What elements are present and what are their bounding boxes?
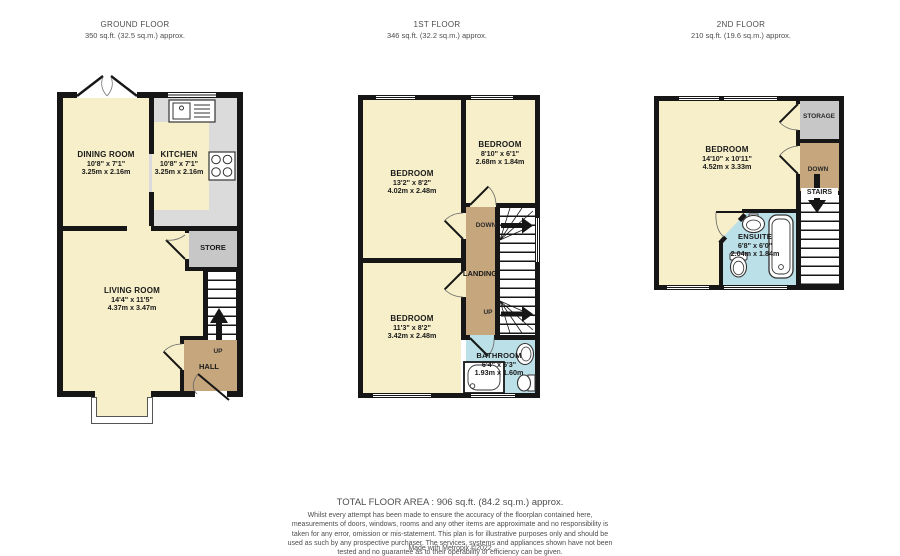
room-dim-m: 2.68m x 1.84m (476, 158, 525, 167)
wall-segment (203, 271, 207, 340)
living-room-label: LIVING ROOM 14'4" x 11'5" 4.37m x 3.47m (104, 287, 160, 313)
bay-window (96, 397, 148, 417)
first-floor-header: 1ST FLOOR 346 sq.ft. (32.2 sq.m.) approx… (387, 20, 487, 40)
wall-segment (654, 96, 659, 290)
staircase (207, 271, 237, 342)
total-floor-area: TOTAL FLOOR AREA : 906 sq.ft. (84.2 sq.m… (337, 497, 564, 508)
floor-title: 1ST FLOOR (387, 20, 487, 29)
second-floor-plan: STAIRS BEDROOM 14'10" x 10'11" 4.52m x 3… (654, 96, 844, 296)
credit-text: Made with Metropix ©2022 (408, 545, 491, 552)
ground-floor-header: GROUND FLOOR 350 sq.ft. (32.5 sq.m.) app… (85, 20, 185, 40)
wall-segment (358, 95, 363, 398)
wall-segment (839, 96, 844, 290)
front-door-opening (195, 391, 227, 397)
landing-label: LANDING (463, 270, 497, 279)
kitchen-label: KITCHEN 10'8" x 7'1" 3.25m x 2.16m (155, 151, 204, 177)
door-opening (470, 203, 496, 207)
store-label: STORE (200, 244, 226, 253)
wall-segment (185, 267, 237, 271)
floor-title: GROUND FLOOR (85, 20, 185, 29)
ensuite-label: ENSUITE 6'8" x 6'0" 2.04m x 1.84m (731, 233, 780, 259)
bedroom2-label: BEDROOM 8'10" x 6'1" 2.68m x 1.84m (476, 141, 525, 167)
floor-area: 210 sq.ft. (19.6 sq.m.) approx. (691, 31, 791, 40)
up-label: UP (483, 309, 492, 318)
hall-door-opening (180, 344, 184, 370)
ground-floor-plan: DINING ROOM 10'8" x 7'1" 3.25m x 2.16m K… (57, 92, 243, 428)
door-opening (796, 104, 800, 130)
door-opening (470, 335, 494, 340)
stairs-label: STAIRS (801, 188, 838, 198)
window (535, 218, 540, 262)
bedroom1-label: BEDROOM 13'2" x 8'2" 4.02m x 2.48m (388, 170, 437, 196)
hall-label: HALL (199, 363, 219, 372)
bedroom-label: BEDROOM 14'10" x 10'11" 4.52m x 3.33m (702, 146, 752, 172)
window (471, 393, 515, 398)
window (168, 92, 216, 98)
window (471, 95, 513, 100)
window (679, 96, 719, 101)
wall-segment (149, 192, 154, 226)
window (724, 96, 777, 101)
dining-room-label: DINING ROOM 10'8" x 7'1" 3.25m x 2.16m (77, 151, 134, 177)
room-dim-m: 1.93m x 1.60m (475, 369, 524, 378)
storage-label: STORAGE (803, 113, 835, 122)
room-dim-m: 4.37m x 3.47m (104, 304, 160, 313)
room-dim-m: 4.52m x 3.33m (702, 163, 752, 172)
room-dim-m: 2.04m x 1.84m (731, 250, 780, 259)
down-label: DOWN (808, 166, 829, 175)
room-dim-m: 4.02m x 2.48m (388, 187, 437, 196)
wall-segment (742, 209, 796, 213)
second-floor-header: 2ND FLOOR 210 sq.ft. (19.6 sq.m.) approx… (691, 20, 791, 40)
store-door-opening (185, 233, 189, 259)
staircase (800, 194, 841, 287)
wall-segment (57, 92, 63, 397)
window (724, 285, 787, 290)
wall-segment (237, 92, 243, 397)
wall-segment (363, 258, 466, 263)
floor-area: 346 sq.ft. (32.2 sq.m.) approx. (387, 31, 487, 40)
door-opening (796, 146, 800, 174)
window (376, 95, 415, 100)
door-opening (127, 226, 151, 231)
down-label: DOWN (476, 222, 497, 231)
room-dim-m: 3.42m x 2.48m (388, 332, 437, 341)
room-dim-m: 3.25m x 2.16m (77, 168, 134, 177)
patio-door-opening (77, 92, 137, 98)
room-dim-m: 3.25m x 2.16m (155, 168, 204, 177)
first-floor-plan: BEDROOM 13'2" x 8'2" 4.02m x 2.48m BEDRO… (358, 95, 540, 403)
window (373, 393, 431, 398)
floor-area: 350 sq.ft. (32.5 sq.m.) approx. (85, 31, 185, 40)
window (667, 285, 709, 290)
floor-title: 2ND FLOOR (691, 20, 791, 29)
bathroom-label: BATHROOM 6'4" x 5'3" 1.93m x 1.60m (475, 352, 524, 378)
door-opening (461, 213, 466, 239)
wall-segment (149, 98, 154, 154)
wall-segment (800, 139, 839, 143)
staircase (499, 207, 537, 337)
floorplan-page: GROUND FLOOR 350 sq.ft. (32.5 sq.m.) app… (0, 0, 900, 556)
wall-segment (719, 241, 723, 285)
bedroom3-label: BEDROOM 11'3" x 8'2" 3.42m x 2.48m (388, 315, 437, 341)
up-label: UP (213, 348, 222, 357)
